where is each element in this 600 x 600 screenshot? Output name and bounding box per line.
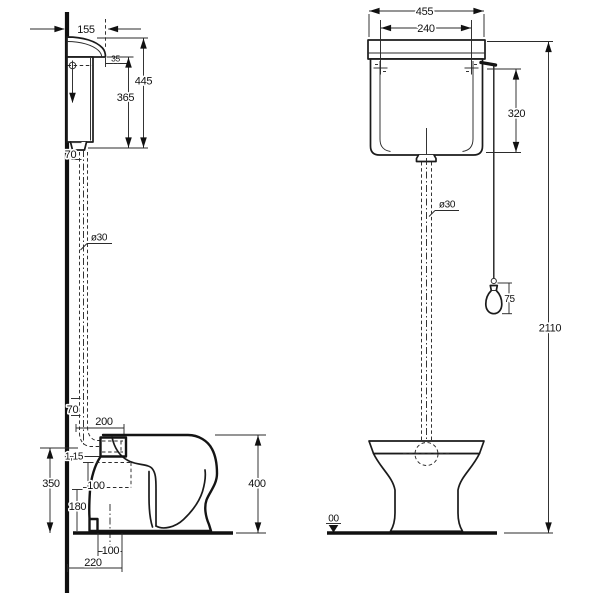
- pan-front: [369, 441, 484, 531]
- dim-wall-to-pan: 1,15: [65, 452, 100, 463]
- dim-label-70-top: 70: [65, 149, 77, 161]
- floor-datum: 00: [326, 514, 341, 533]
- dim-label-400: 400: [248, 478, 266, 490]
- dim-label-70-bottom: 70: [67, 404, 79, 416]
- pipe-diameter-label-side: ø30: [81, 233, 113, 251]
- dim-label-100-mid: 100: [87, 480, 105, 492]
- flush-pipe-side: [80, 150, 102, 447]
- dim-label-455: 455: [416, 6, 434, 18]
- dim-label-35: 35: [111, 54, 120, 64]
- drawing-sheet: 155 35: [0, 0, 600, 600]
- dim-label-dia30-front: ø30: [439, 200, 456, 211]
- pan-side-outline: [98, 435, 218, 531]
- cistern-body-side: [67, 57, 93, 142]
- cistern-lid-front: [368, 40, 485, 59]
- chain-ring: [491, 278, 496, 283]
- dim-label-75: 75: [504, 294, 515, 305]
- dim-label-445: 445: [135, 76, 153, 88]
- dim-label-180: 180: [69, 501, 87, 513]
- dim-label-100-bottom: 100: [102, 545, 120, 557]
- dim-label-155: 155: [77, 24, 95, 36]
- dim-pan-height: 400: [215, 435, 266, 533]
- datum-label-00: 00: [328, 514, 339, 525]
- dim-label-200: 200: [95, 416, 113, 428]
- dim-label-2110: 2110: [539, 323, 562, 335]
- dim-label-350: 350: [42, 478, 60, 490]
- pan-front-rim: [369, 441, 484, 454]
- dim-label-115: 1,15: [65, 452, 84, 463]
- dim-lid-lip: 35: [106, 54, 128, 68]
- cistern-lid-side: [67, 37, 106, 57]
- dim-label-dia30-side: ø30: [91, 233, 108, 244]
- dim-label-365: 365: [117, 92, 135, 104]
- front-view: 455 240: [326, 6, 561, 533]
- dim-label-220: 220: [84, 557, 102, 569]
- dim-outlet-height: 180: [69, 490, 87, 532]
- technical-drawing: 155 35: [0, 0, 600, 600]
- chain-handle: [486, 286, 502, 314]
- dim-wall-to-outlet: 220: [68, 557, 123, 572]
- cistern-front: [368, 40, 485, 162]
- pipe-diameter-label-front: ø30: [429, 200, 459, 217]
- dim-chain-drop: 320: [486, 69, 525, 153]
- pan-front-body: [374, 454, 480, 532]
- dim-label-320: 320: [508, 108, 526, 120]
- dim-label-240: 240: [417, 23, 435, 35]
- pan-side: [89, 435, 218, 556]
- side-view: 155 35: [30, 12, 266, 593]
